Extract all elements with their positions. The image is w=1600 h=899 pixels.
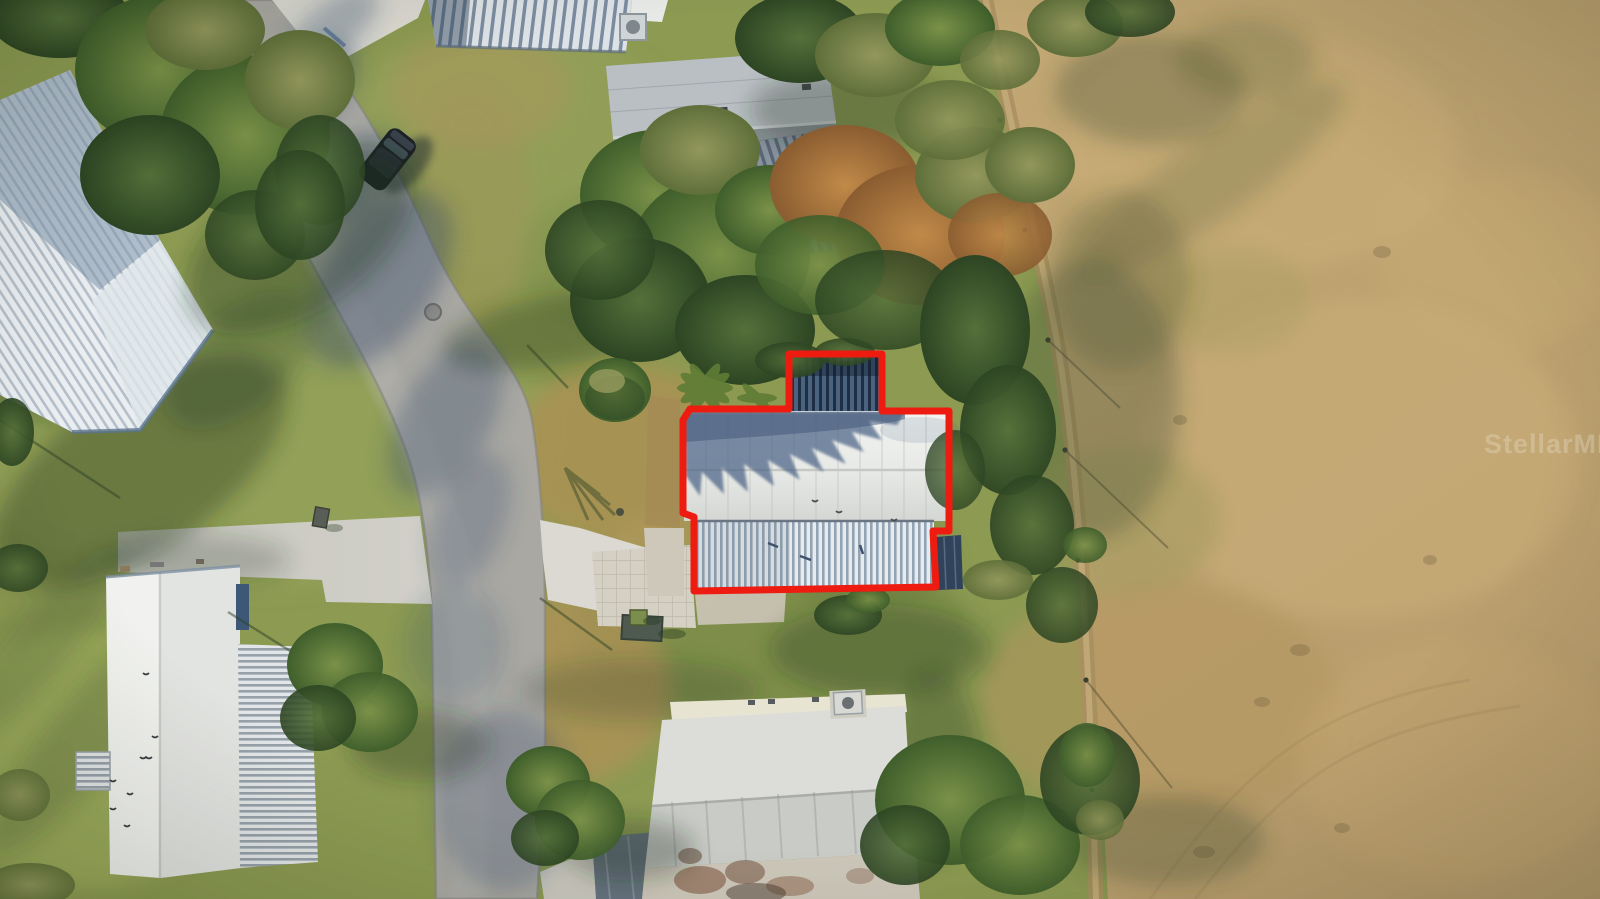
watermark: StellarMLS (1484, 429, 1600, 459)
aerial-photo-canvas: StellarMLS (0, 0, 1600, 899)
aerial-photo: StellarMLS (0, 0, 1600, 899)
photo-vignette (0, 0, 1600, 899)
